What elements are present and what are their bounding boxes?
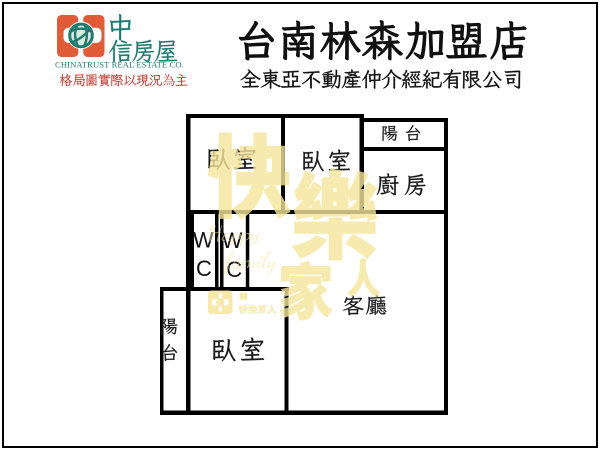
svg-text:C: C: [196, 256, 212, 281]
svg-text:CHINATRUST REAL ESTATE CO.: CHINATRUST REAL ESTATE CO.: [55, 60, 184, 70]
